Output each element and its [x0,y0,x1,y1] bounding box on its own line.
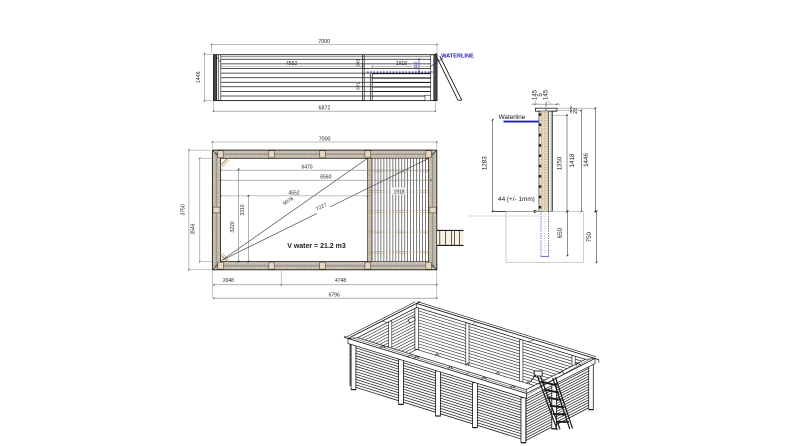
svg-text:650: 650 [557,227,564,238]
svg-text:4552: 4552 [286,61,297,67]
svg-text:6872: 6872 [319,106,331,112]
svg-text:4552: 4552 [289,190,300,196]
svg-text:1283: 1283 [481,156,488,170]
svg-text:28: 28 [573,108,579,114]
svg-text:3546: 3546 [191,223,197,234]
svg-text:6560: 6560 [320,175,331,181]
svg-text:7000: 7000 [318,39,330,45]
svg-text:1918: 1918 [393,189,404,195]
svg-text:1918: 1918 [396,61,407,67]
svg-text:3310: 3310 [240,204,246,215]
svg-text:7000: 7000 [319,136,331,142]
svg-text:145: 145 [543,89,549,100]
svg-text:410: 410 [413,61,418,69]
svg-text:545: 545 [356,59,361,67]
svg-text:750: 750 [586,231,593,242]
svg-text:1446: 1446 [583,153,590,167]
svg-text:1446: 1446 [196,71,202,83]
svg-text:WATERLINE: WATERLINE [441,53,474,59]
svg-text:871: 871 [356,82,361,90]
svg-text:2048: 2048 [223,278,234,284]
svg-text:44 (+/- 1mm): 44 (+/- 1mm) [498,196,535,203]
svg-text:3220: 3220 [230,221,236,232]
svg-text:1350: 1350 [557,156,564,170]
svg-text:Waterline: Waterline [499,114,526,121]
svg-text:1418: 1418 [569,153,576,167]
svg-text:V water = 21.2 m3: V water = 21.2 m3 [287,243,346,250]
svg-text:6470: 6470 [301,165,312,171]
svg-text:6796: 6796 [329,292,340,298]
svg-text:3750: 3750 [181,204,187,215]
svg-text:4748: 4748 [335,278,346,284]
